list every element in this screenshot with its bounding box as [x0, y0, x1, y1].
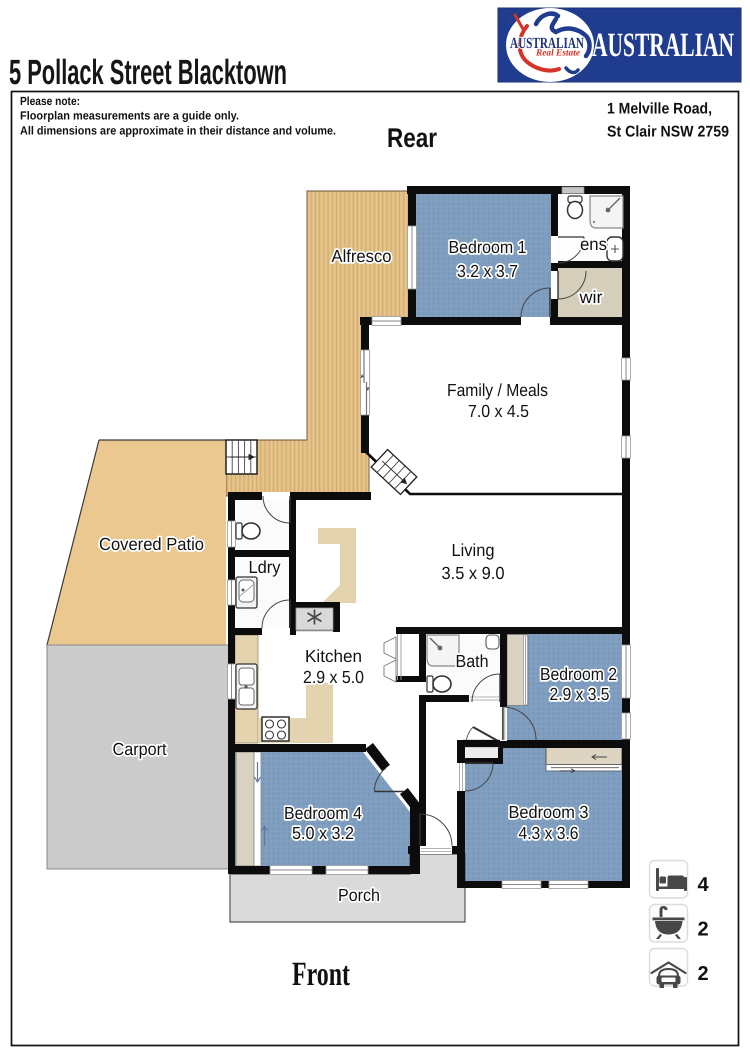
- svg-text:Please note:: Please note:: [20, 94, 80, 108]
- svg-text:1 Melville Road,: 1 Melville Road,: [607, 101, 712, 118]
- svg-text:Ldry: Ldry: [249, 557, 281, 577]
- svg-text:Bath: Bath: [456, 651, 489, 671]
- svg-text:Bedroom 2: Bedroom 2: [540, 664, 617, 684]
- svg-text:Living: Living: [452, 540, 495, 560]
- svg-text:St Clair NSW 2759: St Clair NSW 2759: [607, 124, 729, 141]
- svg-text:2: 2: [697, 919, 708, 941]
- svg-text:5 Pollack Street Blacktown: 5 Pollack Street Blacktown: [9, 53, 287, 92]
- svg-text:Porch: Porch: [338, 885, 380, 905]
- svg-text:Carport: Carport: [113, 739, 167, 759]
- svg-text:2: 2: [697, 963, 708, 985]
- svg-text:Family / Meals: Family / Meals: [447, 380, 548, 400]
- svg-text:All dimensions are approximate: All dimensions are approximate in their …: [20, 123, 336, 137]
- svg-text:3.5 x 9.0: 3.5 x 9.0: [442, 563, 505, 583]
- svg-text:5.0 x 3.2: 5.0 x 3.2: [292, 823, 354, 843]
- svg-text:Front: Front: [292, 956, 350, 993]
- svg-text:Rear: Rear: [387, 123, 437, 153]
- svg-text:4: 4: [697, 874, 709, 896]
- svg-text:Alfresco: Alfresco: [332, 246, 392, 266]
- svg-text:Kitchen: Kitchen: [305, 646, 362, 666]
- svg-text:7.0 x 4.5: 7.0 x 4.5: [468, 401, 529, 421]
- svg-text:Bedroom 4: Bedroom 4: [284, 803, 362, 823]
- svg-text:Real Estate: Real Estate: [535, 49, 581, 59]
- svg-text:Bedroom 3: Bedroom 3: [509, 802, 589, 822]
- svg-text:Covered Patio: Covered Patio: [99, 534, 204, 554]
- svg-text:3.2 x 3.7: 3.2 x 3.7: [457, 261, 518, 281]
- svg-text:ens: ens: [580, 234, 607, 254]
- svg-text:2.9 x 5.0: 2.9 x 5.0: [303, 667, 364, 687]
- svg-text:Floorplan measurements are a g: Floorplan measurements are a guide only.: [20, 109, 239, 123]
- svg-text:4.3 x 3.6: 4.3 x 3.6: [519, 823, 579, 843]
- svg-text:2.9 x 3.5: 2.9 x 3.5: [550, 684, 610, 704]
- svg-text:Bedroom 1: Bedroom 1: [449, 237, 527, 257]
- svg-text:AUSTRALIAN: AUSTRALIAN: [592, 27, 734, 64]
- svg-text:wir: wir: [578, 287, 602, 307]
